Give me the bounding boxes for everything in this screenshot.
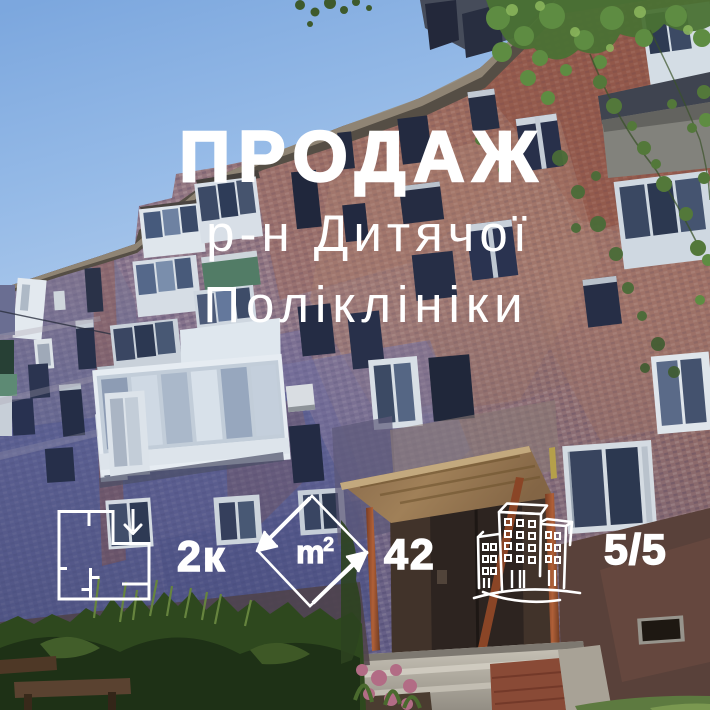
svg-text:Поліклініки: Поліклініки	[203, 276, 528, 333]
svg-text:р-н Дитячої: р-н Дитячої	[206, 205, 532, 262]
svg-text:m: m	[296, 534, 324, 570]
svg-text:2к: 2к	[177, 533, 226, 581]
svg-text:ПРОДАЖ: ПРОДАЖ	[179, 118, 545, 197]
svg-text:5/5: 5/5	[604, 526, 667, 574]
svg-text:2: 2	[323, 534, 334, 556]
svg-text:42: 42	[384, 531, 436, 579]
